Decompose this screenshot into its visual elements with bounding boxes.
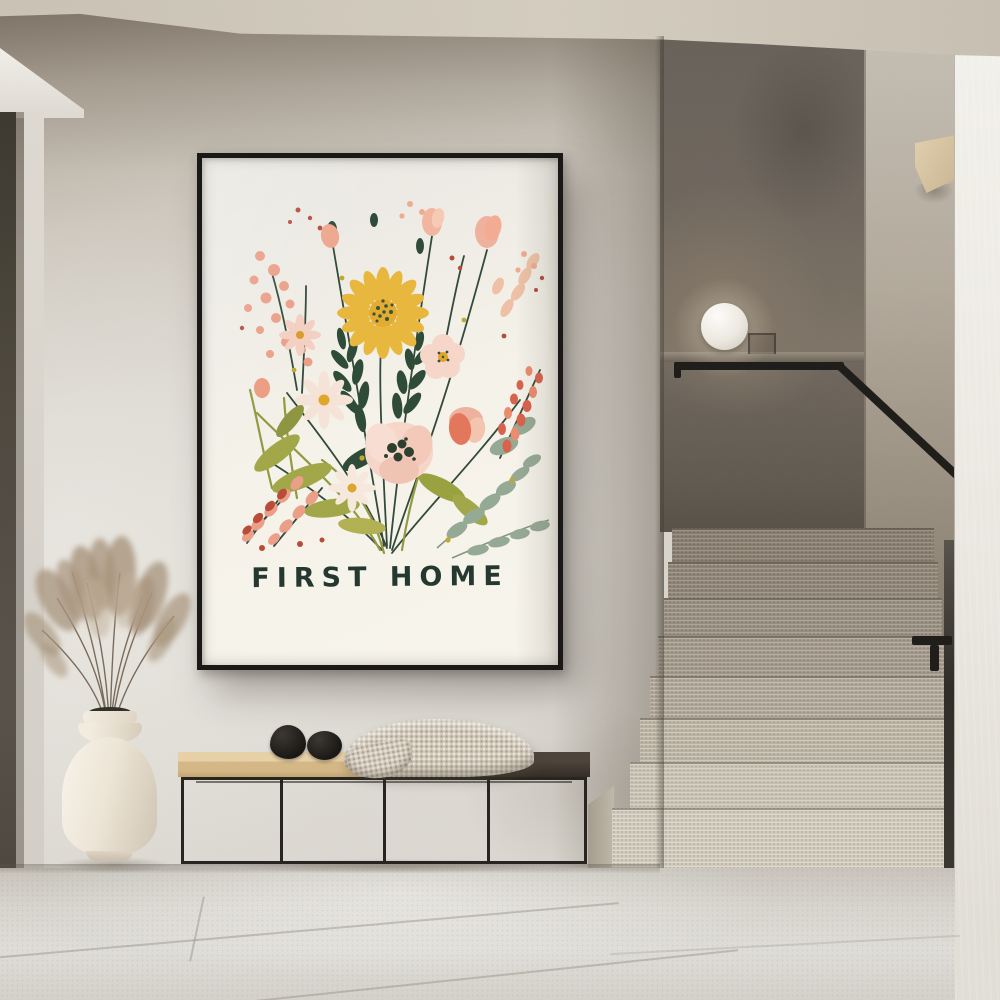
tulip	[422, 207, 446, 236]
daisy	[295, 371, 353, 429]
left-wall-return	[24, 112, 44, 882]
handrail-bracket	[912, 636, 952, 645]
bench-frame-divider	[487, 780, 490, 861]
bench-frame-divider	[280, 780, 283, 861]
stair-step	[640, 718, 944, 762]
sunflower	[337, 267, 429, 359]
vase-foot	[86, 851, 133, 861]
hallway-scene: FIRST HOME	[0, 0, 1000, 1000]
ceramic-vase	[62, 737, 157, 855]
bouquet-illustration	[202, 158, 558, 665]
daisy	[328, 464, 376, 512]
stair-step	[630, 762, 944, 808]
poster-title: FIRST HOME	[202, 560, 558, 594]
daisy	[279, 314, 321, 356]
wall-corner	[655, 36, 664, 874]
poppy-flower	[360, 419, 438, 484]
stair-step	[668, 562, 938, 598]
stair-step	[650, 676, 944, 718]
foreground-white-wall	[954, 40, 1000, 1000]
decor-stone	[307, 731, 342, 760]
stair-step	[658, 636, 944, 676]
handrail-landing	[674, 362, 844, 370]
flower-bud	[254, 378, 270, 398]
left-door-frame	[0, 112, 16, 888]
poster-frame: FIRST HOME	[197, 153, 563, 670]
lamp-stand	[748, 333, 776, 354]
stair-step	[672, 528, 934, 562]
coral-cup-flower	[447, 407, 488, 446]
stair-landing-face	[660, 362, 866, 532]
poster-paper: FIRST HOME	[202, 158, 558, 665]
blush-flower	[420, 334, 465, 379]
left-door-frame-edge	[16, 112, 24, 884]
decor-stone	[270, 725, 306, 759]
bench-frame-divider	[383, 780, 386, 861]
floor-texture	[0, 868, 955, 1000]
bench-frame	[181, 777, 587, 864]
tulip	[475, 213, 504, 248]
flower-bud	[319, 223, 341, 250]
sphere-lamp	[701, 303, 748, 350]
stair-step	[664, 598, 942, 636]
bench-back-rail	[196, 781, 572, 783]
pampas-grass	[2, 528, 218, 728]
handrail-bracket-post	[930, 645, 939, 671]
